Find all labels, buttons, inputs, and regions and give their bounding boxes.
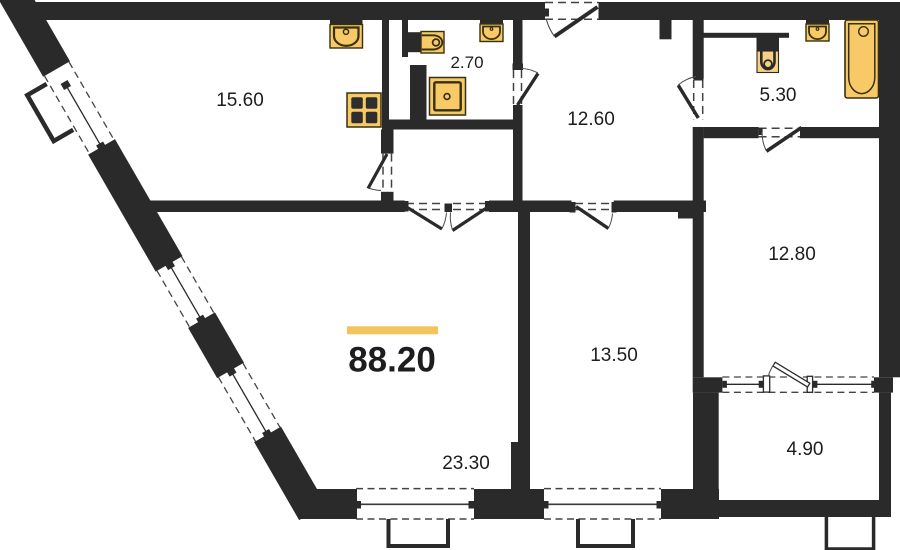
svg-text:88.20: 88.20 [348, 341, 436, 380]
svg-text:23.30: 23.30 [442, 453, 490, 474]
svg-text:12.80: 12.80 [768, 244, 816, 265]
svg-text:4.90: 4.90 [787, 439, 824, 460]
svg-text:5.30: 5.30 [760, 85, 797, 106]
svg-text:12.60: 12.60 [567, 109, 615, 130]
svg-text:15.60: 15.60 [216, 90, 264, 111]
svg-text:2.70: 2.70 [450, 53, 483, 72]
svg-text:13.50: 13.50 [590, 345, 638, 366]
